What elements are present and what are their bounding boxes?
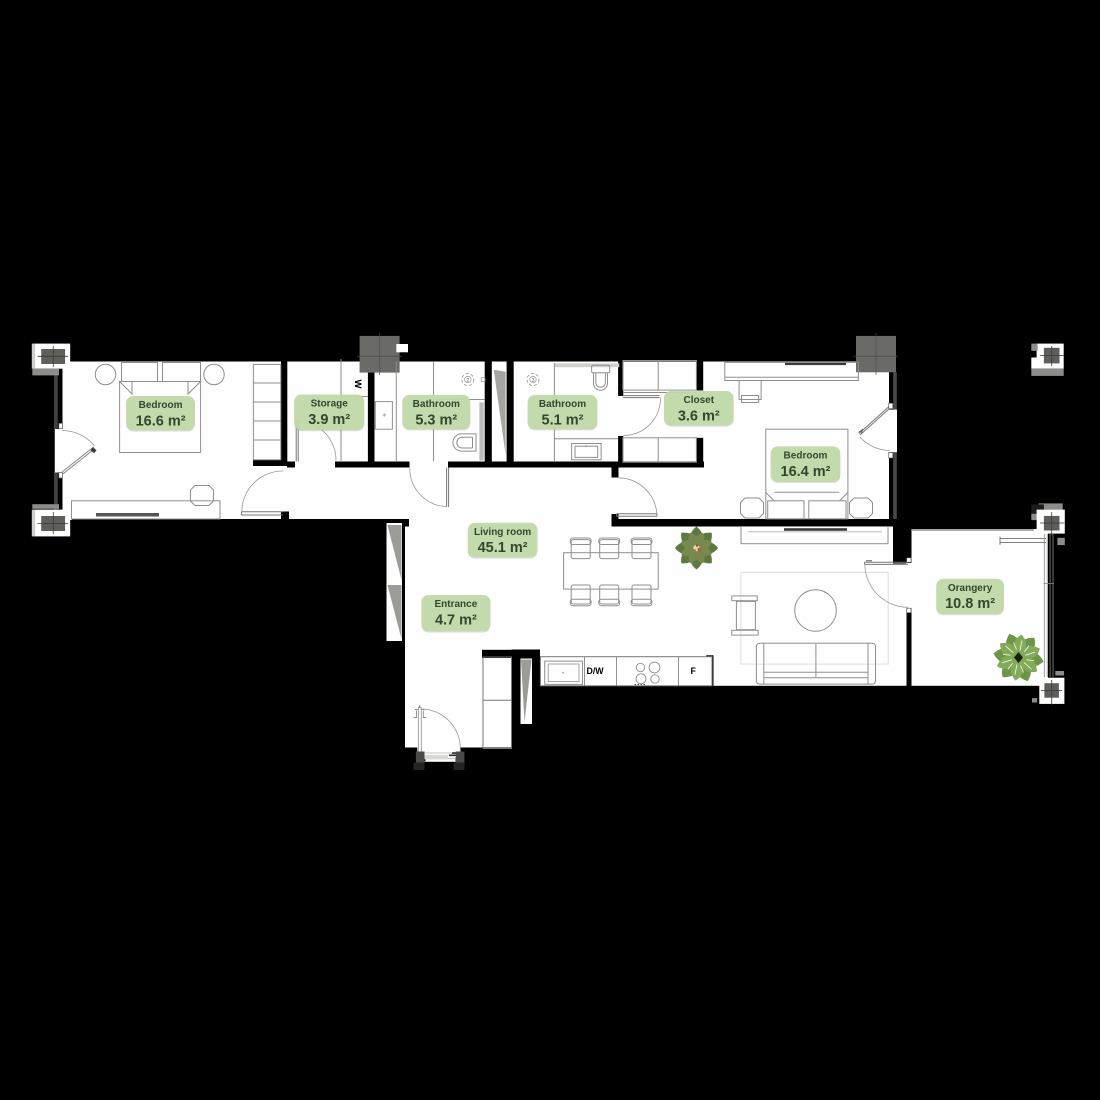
svg-text:Bathroom: Bathroom (413, 399, 460, 410)
svg-text:Entrance: Entrance (435, 599, 478, 610)
svg-text:Bathroom: Bathroom (539, 399, 586, 410)
svg-text:3: 3 (531, 378, 534, 384)
svg-text:Bedroom: Bedroom (139, 400, 183, 411)
svg-text:Storage: Storage (311, 399, 349, 410)
svg-text:16.4 m²: 16.4 m² (781, 464, 831, 480)
svg-text:5.3 m²: 5.3 m² (415, 412, 457, 428)
svg-text:F: F (691, 666, 697, 676)
svg-text:D/W: D/W (587, 666, 605, 676)
svg-text:Orangery: Orangery (948, 583, 993, 594)
svg-text:10.8 m²: 10.8 m² (945, 596, 995, 612)
svg-text:Bedroom: Bedroom (784, 451, 828, 462)
svg-text:45.1 m²: 45.1 m² (478, 540, 528, 556)
svg-text:Living room: Living room (474, 527, 531, 538)
svg-text:3.9 m²: 3.9 m² (308, 412, 350, 428)
svg-text:5.1 m²: 5.1 m² (542, 412, 584, 428)
svg-text:3.6 m²: 3.6 m² (678, 408, 720, 424)
svg-text:W: W (352, 380, 363, 389)
svg-text:Closet: Closet (684, 395, 715, 406)
svg-text:2: 2 (466, 378, 469, 384)
svg-text:4.7 m²: 4.7 m² (435, 612, 477, 628)
svg-text:16.6 m²: 16.6 m² (136, 413, 186, 429)
